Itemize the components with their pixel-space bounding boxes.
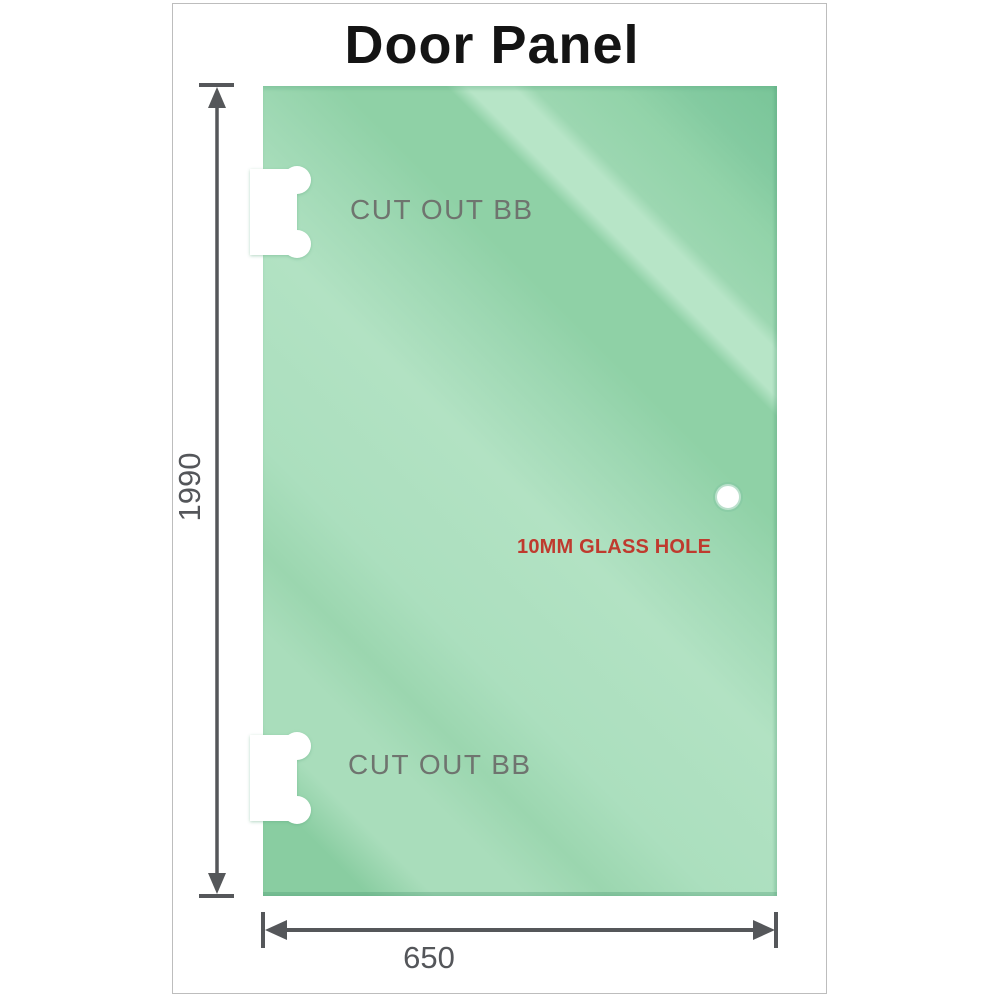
door-panel-diagram: Door Panel [0,0,1000,1000]
glass-hole [715,484,741,510]
diagram-overlay [0,0,1000,1000]
top-cutout-label: CUT OUT BB [350,194,534,226]
top-cutout-shape [250,166,311,258]
width-dimension-arrow [263,912,776,948]
bottom-cutout-shape [250,732,311,824]
glass-hole-label: 10MM GLASS HOLE [517,536,711,559]
height-dimension-label: 1990 [172,453,208,522]
bottom-cutout-label: CUT OUT BB [348,749,532,781]
width-dimension-label: 650 [403,940,455,976]
